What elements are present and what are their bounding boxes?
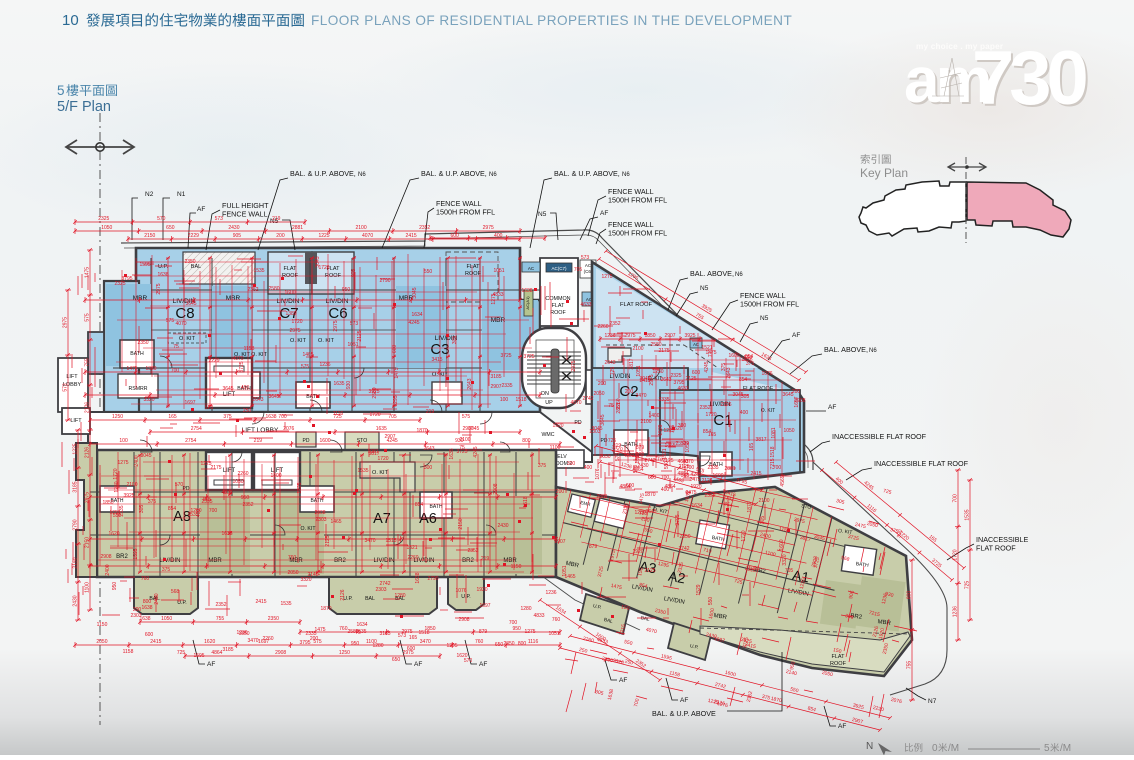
svg-text:2100: 2100 — [356, 225, 367, 231]
svg-text:O. KIT: O. KIT — [318, 338, 335, 344]
svg-text:2229: 2229 — [208, 358, 219, 364]
svg-text:2908: 2908 — [493, 483, 499, 494]
svg-text:1697: 1697 — [479, 603, 490, 609]
svg-text:FLAT: FLAT — [283, 266, 297, 272]
svg-text:2260: 2260 — [262, 636, 273, 642]
svg-text:1518: 1518 — [770, 446, 776, 457]
svg-text:2050: 2050 — [593, 391, 604, 397]
svg-text:LIFT: LIFT — [70, 418, 82, 424]
svg-text:2325: 2325 — [98, 216, 109, 222]
svg-text:2100: 2100 — [126, 482, 137, 488]
svg-text:1920: 1920 — [552, 423, 563, 429]
svg-text:3045: 3045 — [140, 453, 151, 459]
svg-text:1051: 1051 — [548, 631, 559, 637]
svg-text:4833: 4833 — [623, 453, 634, 459]
svg-text:1465: 1465 — [330, 519, 341, 525]
svg-text:1620: 1620 — [204, 639, 215, 645]
svg-text:575: 575 — [85, 313, 91, 322]
svg-text:2415: 2415 — [750, 471, 761, 477]
svg-text:755: 755 — [216, 616, 225, 622]
svg-text:2975: 2975 — [63, 317, 69, 328]
svg-text:2580: 2580 — [268, 286, 279, 292]
svg-text:3645: 3645 — [600, 414, 606, 425]
svg-text:5/F Plan: 5/F Plan — [57, 99, 111, 115]
svg-text:1850: 1850 — [102, 500, 113, 506]
svg-text:FLAT ROOF: FLAT ROOF — [620, 302, 652, 308]
svg-text:Key Plan: Key Plan — [860, 166, 908, 180]
svg-text:1250: 1250 — [112, 414, 123, 420]
svg-text:3045: 3045 — [591, 426, 602, 432]
svg-text:1389: 1389 — [285, 311, 296, 317]
svg-text:FLAT: FLAT — [466, 264, 480, 270]
svg-text:2430: 2430 — [497, 523, 508, 529]
svg-text:165: 165 — [409, 635, 418, 641]
svg-text:2881: 2881 — [596, 494, 607, 500]
svg-text:LIFT: LIFT — [223, 468, 236, 474]
svg-text:3045: 3045 — [412, 287, 418, 298]
svg-text:1635: 1635 — [333, 381, 344, 387]
svg-text:BAL: BAL — [365, 596, 375, 602]
svg-text:LIV/DIN: LIV/DIN — [373, 558, 394, 564]
svg-text:3817: 3817 — [368, 451, 379, 457]
svg-text:375: 375 — [162, 567, 171, 573]
svg-text:4633: 4633 — [580, 302, 591, 308]
svg-text:573: 573 — [215, 216, 224, 222]
svg-text:1076: 1076 — [761, 371, 772, 377]
svg-text:219: 219 — [426, 409, 435, 415]
svg-text:400: 400 — [584, 465, 593, 471]
svg-text:2335: 2335 — [119, 505, 125, 516]
svg-text:905: 905 — [351, 269, 357, 278]
svg-text:FLAT ROOF: FLAT ROOF — [976, 544, 1016, 553]
svg-text:905: 905 — [233, 233, 242, 239]
svg-text:3320: 3320 — [782, 554, 788, 565]
svg-text:1634: 1634 — [691, 503, 702, 509]
svg-text:2580: 2580 — [650, 342, 661, 348]
svg-text:1500H FROM FFL: 1500H FROM FFL — [608, 196, 667, 205]
svg-text:2126: 2126 — [85, 447, 91, 458]
svg-text:2352: 2352 — [609, 321, 620, 327]
svg-text:AC(A1): AC(A1) — [525, 296, 530, 310]
svg-text:600: 600 — [145, 632, 154, 638]
svg-text:1475: 1475 — [126, 366, 137, 372]
svg-text:800: 800 — [143, 599, 152, 605]
svg-text:2975: 2975 — [85, 492, 91, 503]
svg-text:2430: 2430 — [154, 593, 160, 604]
svg-text:650: 650 — [166, 225, 175, 231]
svg-text:1595: 1595 — [133, 548, 139, 559]
svg-text:1870: 1870 — [320, 606, 331, 612]
svg-text:N6: N6 — [869, 348, 877, 354]
svg-text:760: 760 — [552, 617, 561, 623]
svg-text:2754: 2754 — [185, 438, 196, 444]
svg-text:1389: 1389 — [145, 366, 156, 372]
svg-text:1518: 1518 — [523, 496, 529, 507]
svg-text:2352: 2352 — [704, 493, 715, 499]
svg-text:1280: 1280 — [394, 593, 405, 599]
svg-text:3470: 3470 — [635, 393, 646, 399]
svg-text:1465: 1465 — [564, 574, 575, 580]
svg-text:1600: 1600 — [284, 290, 295, 296]
svg-text:BR2: BR2 — [462, 558, 474, 564]
svg-text:1638: 1638 — [521, 288, 532, 294]
svg-text:573: 573 — [63, 383, 69, 392]
svg-text:3045: 3045 — [732, 392, 743, 398]
svg-text:2907: 2907 — [490, 384, 501, 390]
svg-text:C6: C6 — [328, 305, 347, 322]
svg-text:1051: 1051 — [347, 342, 358, 348]
svg-text:1500H FROM FFL: 1500H FROM FFL — [740, 300, 799, 309]
svg-text:MBR: MBR — [208, 558, 222, 564]
svg-text:760: 760 — [339, 626, 348, 632]
svg-text:2907: 2907 — [554, 539, 565, 545]
svg-text:BAL. ABOVE,: BAL. ABOVE, — [824, 345, 868, 354]
svg-text:1518: 1518 — [515, 397, 526, 403]
svg-text:879: 879 — [589, 544, 598, 550]
svg-text:2260: 2260 — [237, 471, 248, 477]
svg-text:AF: AF — [792, 332, 800, 339]
svg-text:BAL. ABOVE,: BAL. ABOVE, — [690, 269, 734, 278]
svg-text:4833: 4833 — [221, 490, 232, 496]
svg-text:2335: 2335 — [658, 397, 669, 403]
svg-text:854: 854 — [739, 377, 748, 383]
svg-text:400: 400 — [196, 509, 202, 518]
svg-text:UP: UP — [545, 400, 553, 406]
svg-text:219: 219 — [481, 556, 490, 562]
svg-text:2975: 2975 — [289, 328, 300, 334]
svg-text:200: 200 — [598, 381, 607, 387]
svg-text:1225: 1225 — [73, 443, 79, 454]
svg-text:2125: 2125 — [662, 458, 673, 464]
svg-text:200: 200 — [625, 389, 634, 395]
svg-text:2430: 2430 — [228, 225, 239, 231]
svg-text:BATH: BATH — [311, 498, 324, 504]
svg-text:2643: 2643 — [252, 397, 263, 403]
svg-text:5: 5 — [57, 83, 65, 98]
svg-text:1870: 1870 — [747, 501, 753, 512]
svg-text:2050: 2050 — [599, 454, 610, 460]
svg-text:800: 800 — [522, 438, 531, 444]
svg-text:FENCE WALL: FENCE WALL — [222, 210, 268, 219]
svg-text:700: 700 — [773, 465, 782, 471]
svg-text:1050: 1050 — [101, 225, 112, 231]
svg-text:3185: 3185 — [222, 647, 233, 653]
svg-text:4245: 4245 — [704, 361, 710, 372]
svg-text:2229: 2229 — [188, 233, 199, 239]
svg-text:2335: 2335 — [501, 383, 512, 389]
svg-text:1150: 1150 — [97, 622, 108, 628]
svg-text:1870: 1870 — [416, 428, 427, 434]
svg-text:2050: 2050 — [287, 570, 298, 576]
svg-text:3185: 3185 — [73, 481, 79, 492]
svg-text:A6: A6 — [419, 511, 437, 527]
svg-text:2643: 2643 — [423, 446, 434, 452]
svg-text:2975: 2975 — [333, 320, 339, 331]
svg-text:730: 730 — [972, 36, 1087, 121]
svg-text:3645: 3645 — [268, 394, 279, 400]
svg-text:N7: N7 — [928, 698, 937, 705]
svg-text:3320: 3320 — [143, 397, 154, 403]
svg-text:2260: 2260 — [597, 324, 608, 330]
svg-text:DN: DN — [541, 391, 549, 397]
svg-text:1920: 1920 — [690, 484, 701, 490]
svg-text:3817: 3817 — [755, 437, 766, 443]
svg-text:1500H FROM FFL: 1500H FROM FFL — [608, 229, 667, 238]
svg-text:2908: 2908 — [100, 554, 111, 560]
svg-text:2580: 2580 — [372, 387, 378, 398]
svg-text:4245: 4245 — [408, 320, 419, 326]
svg-text:719: 719 — [681, 441, 690, 447]
svg-text:N: N — [866, 741, 873, 752]
svg-text:4864: 4864 — [211, 650, 222, 656]
svg-text:2790: 2790 — [379, 278, 390, 284]
svg-text:2908: 2908 — [314, 510, 325, 516]
svg-text:760: 760 — [288, 555, 297, 561]
svg-text:219: 219 — [272, 216, 281, 222]
svg-text:600: 600 — [407, 646, 416, 652]
svg-text:1250: 1250 — [652, 369, 663, 375]
svg-text:1521: 1521 — [406, 545, 417, 551]
svg-text:200: 200 — [276, 233, 285, 239]
svg-text:854: 854 — [168, 506, 177, 512]
svg-text:AF: AF — [207, 661, 215, 668]
svg-text:2126: 2126 — [701, 478, 712, 484]
svg-text:2350: 2350 — [679, 534, 690, 540]
svg-text:1535: 1535 — [965, 509, 971, 520]
svg-text:1720: 1720 — [291, 319, 302, 325]
svg-text:2908: 2908 — [275, 650, 286, 656]
svg-text:BAL. & U.P. ABOVE,: BAL. & U.P. ABOVE, — [421, 169, 487, 178]
svg-text:O. KIT: O. KIT — [372, 470, 389, 476]
svg-text:AF: AF — [828, 404, 836, 411]
svg-text:2643: 2643 — [726, 367, 732, 378]
svg-text:2908: 2908 — [794, 398, 805, 404]
svg-text:1600: 1600 — [728, 353, 739, 359]
svg-text:4864: 4864 — [664, 484, 675, 490]
svg-text:FLAT: FLAT — [552, 303, 565, 309]
svg-text:375: 375 — [148, 499, 157, 505]
svg-text:INACCESSIBLE FLAT ROOF: INACCESSIBLE FLAT ROOF — [832, 432, 927, 441]
svg-text:3817: 3817 — [629, 358, 635, 369]
svg-text:165: 165 — [708, 432, 717, 438]
svg-text:AF: AF — [479, 661, 487, 668]
svg-text:700: 700 — [953, 494, 959, 503]
svg-text:2150: 2150 — [73, 557, 79, 568]
svg-text:719: 719 — [708, 349, 714, 358]
svg-text:5: 5 — [1044, 743, 1050, 754]
svg-text:4070: 4070 — [175, 321, 186, 327]
svg-text:1295: 1295 — [393, 395, 399, 406]
svg-text:2352: 2352 — [419, 225, 430, 231]
svg-text:AF: AF — [414, 661, 422, 668]
svg-text:725: 725 — [610, 367, 616, 376]
svg-text:3470: 3470 — [420, 639, 431, 645]
svg-text:1500H FROM FFL: 1500H FROM FFL — [436, 208, 495, 217]
svg-text:1535: 1535 — [355, 629, 366, 635]
svg-text:1638: 1638 — [221, 531, 232, 537]
svg-text:2350: 2350 — [184, 259, 195, 265]
svg-text:1635: 1635 — [376, 426, 387, 432]
svg-text:1275: 1275 — [524, 629, 535, 635]
svg-text:1236: 1236 — [319, 362, 330, 368]
svg-text:2742: 2742 — [678, 546, 689, 552]
svg-text:O. KIT: O. KIT — [179, 336, 196, 342]
svg-text:2140: 2140 — [307, 572, 318, 578]
svg-text:4864: 4864 — [677, 471, 688, 477]
svg-text:O. KIT: O. KIT — [301, 526, 317, 532]
svg-text:BAL. & U.P. ABOVE: BAL. & U.P. ABOVE — [652, 709, 716, 718]
svg-text:AF: AF — [600, 210, 608, 217]
svg-text:2975: 2975 — [571, 360, 577, 371]
svg-text:1518: 1518 — [418, 630, 429, 636]
svg-text:2260: 2260 — [616, 398, 622, 409]
svg-text:1280: 1280 — [372, 643, 383, 649]
svg-text:10: 10 — [62, 12, 79, 29]
svg-text:/M: /M — [948, 743, 959, 754]
svg-text:2475: 2475 — [685, 490, 696, 496]
svg-text:2415: 2415 — [406, 233, 417, 239]
svg-text:1638: 1638 — [141, 605, 152, 611]
svg-text:1620: 1620 — [635, 452, 641, 463]
svg-text:1595: 1595 — [193, 653, 204, 659]
svg-text:2076: 2076 — [283, 426, 294, 432]
svg-text:PD: PD — [601, 438, 608, 444]
svg-text:LIFT LOBBY: LIFT LOBBY — [242, 427, 279, 434]
svg-text:755: 755 — [907, 661, 913, 670]
svg-text:950: 950 — [342, 287, 351, 293]
svg-text:2881: 2881 — [292, 225, 303, 231]
svg-text:75: 75 — [173, 344, 179, 350]
svg-text:3645: 3645 — [645, 509, 656, 515]
svg-text:3645: 3645 — [782, 392, 793, 398]
svg-text:4070: 4070 — [570, 400, 581, 406]
svg-text:1081: 1081 — [771, 427, 777, 438]
svg-text:400: 400 — [740, 410, 749, 416]
svg-text:2126: 2126 — [340, 589, 346, 600]
svg-text:2100: 2100 — [632, 346, 643, 352]
svg-text:2175: 2175 — [658, 348, 669, 354]
svg-text:2335: 2335 — [707, 465, 718, 471]
svg-text:LIV/DIN: LIV/DIN — [159, 558, 180, 564]
svg-text:PD: PD — [303, 438, 310, 444]
svg-text:2100: 2100 — [640, 419, 651, 425]
svg-text:BATH: BATH — [430, 504, 443, 510]
svg-text:1634: 1634 — [356, 622, 367, 628]
svg-text:75: 75 — [608, 403, 614, 409]
svg-text:573: 573 — [350, 321, 359, 327]
svg-text:2975: 2975 — [483, 225, 494, 231]
svg-text:1236: 1236 — [604, 333, 615, 339]
svg-text:854: 854 — [415, 502, 424, 508]
svg-text:MBR: MBR — [491, 317, 506, 324]
svg-text:RSMRR: RSMRR — [128, 386, 147, 392]
svg-text:800: 800 — [907, 591, 913, 600]
svg-text:4245: 4245 — [473, 446, 479, 457]
svg-text:2325: 2325 — [114, 281, 125, 287]
svg-text:BATH: BATH — [130, 351, 144, 357]
svg-text:1720: 1720 — [705, 412, 716, 418]
svg-text:BR2: BR2 — [116, 554, 128, 560]
svg-text:1225: 1225 — [663, 428, 674, 434]
svg-text:725: 725 — [177, 650, 186, 656]
svg-text:760: 760 — [475, 639, 484, 645]
svg-text:1225: 1225 — [318, 233, 329, 239]
svg-text:3725: 3725 — [500, 353, 511, 359]
svg-text:1920: 1920 — [632, 549, 643, 555]
svg-text:1225: 1225 — [297, 482, 303, 493]
svg-text:1600: 1600 — [319, 438, 330, 444]
svg-text:1535: 1535 — [280, 601, 291, 607]
svg-text:930: 930 — [346, 381, 352, 390]
svg-text:2150: 2150 — [85, 537, 91, 548]
svg-text:1475: 1475 — [394, 367, 400, 378]
svg-text:800: 800 — [518, 641, 527, 647]
svg-text:2125: 2125 — [644, 568, 655, 574]
svg-text:FLOOR PLANS OF RESIDENTIAL PRO: FLOOR PLANS OF RESIDENTIAL PROPERTIES IN… — [311, 13, 792, 28]
svg-text:2100: 2100 — [459, 437, 470, 443]
svg-text:4633: 4633 — [677, 386, 688, 392]
svg-text:1720: 1720 — [953, 549, 959, 560]
svg-text:3795: 3795 — [299, 640, 310, 646]
svg-text:AF: AF — [619, 677, 627, 684]
svg-text:INACCESSIBLE FLAT ROOF: INACCESSIBLE FLAT ROOF — [874, 459, 969, 468]
svg-text:165: 165 — [168, 414, 177, 420]
svg-text:1280: 1280 — [520, 606, 531, 612]
svg-text:2350: 2350 — [503, 641, 514, 647]
svg-text:1600: 1600 — [712, 473, 723, 479]
svg-text:2975: 2975 — [649, 374, 655, 385]
svg-text:1116: 1116 — [528, 639, 539, 645]
svg-text:550: 550 — [424, 269, 433, 275]
svg-text:570: 570 — [464, 658, 473, 664]
svg-text:600: 600 — [450, 233, 459, 239]
svg-text:N6: N6 — [358, 172, 366, 178]
svg-text:1100: 1100 — [85, 582, 91, 593]
svg-text:854: 854 — [745, 354, 754, 360]
svg-text:2175: 2175 — [210, 465, 221, 471]
svg-text:WMC: WMC — [542, 432, 555, 438]
svg-text:2126: 2126 — [85, 402, 91, 413]
svg-text:1697: 1697 — [184, 400, 195, 406]
svg-text:1280: 1280 — [114, 481, 120, 492]
svg-text:3470: 3470 — [247, 638, 258, 644]
svg-text:3185: 3185 — [379, 631, 390, 637]
svg-text:2150: 2150 — [458, 518, 464, 529]
svg-text:N6: N6 — [735, 272, 743, 278]
svg-text:600: 600 — [692, 370, 701, 376]
svg-text:4633: 4633 — [677, 459, 688, 465]
svg-text:1535: 1535 — [357, 468, 368, 474]
svg-text:1638: 1638 — [415, 572, 421, 583]
svg-text:755: 755 — [85, 358, 91, 367]
svg-text:200: 200 — [556, 489, 565, 495]
svg-text:3470: 3470 — [364, 538, 375, 544]
svg-text:N1: N1 — [177, 191, 186, 198]
svg-text:650: 650 — [495, 642, 504, 648]
svg-text:ROOF: ROOF — [550, 310, 566, 316]
svg-text:2125: 2125 — [685, 376, 696, 382]
svg-text:575: 575 — [166, 318, 175, 324]
svg-text:1920: 1920 — [476, 587, 487, 593]
svg-text:1720: 1720 — [113, 468, 119, 479]
svg-text:305: 305 — [760, 516, 766, 525]
svg-text:573: 573 — [581, 255, 590, 261]
svg-text:100: 100 — [119, 438, 128, 444]
svg-text:AC(C7): AC(C7) — [551, 266, 567, 271]
svg-text:2475: 2475 — [689, 477, 700, 483]
svg-text:650: 650 — [392, 657, 401, 663]
svg-text:1620: 1620 — [108, 531, 119, 537]
